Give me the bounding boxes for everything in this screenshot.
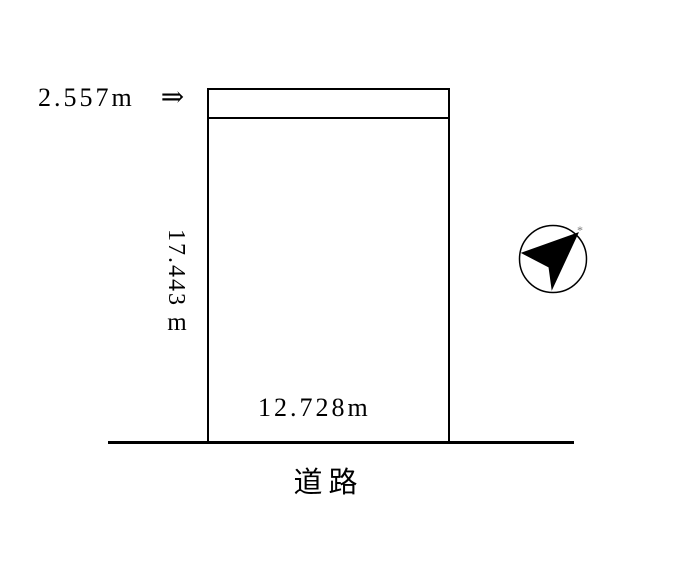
compass-needle-shape [522, 233, 578, 289]
setback-dimension: 2.557m ⇒ [38, 84, 184, 112]
right-double-arrow-icon: ⇒ [161, 84, 184, 112]
depth-dimension-unit: m [163, 310, 191, 336]
road-label: 道路 [207, 466, 450, 500]
north-arrow-icon: * [514, 219, 594, 299]
frontage-dimension-value: 12.728m [258, 394, 371, 422]
setback-dimension-value: 2.557m [38, 84, 135, 112]
setback-divider-line [207, 117, 450, 119]
land-plot-diagram: 2.557m ⇒ 17.443 m 12.728m 道路 * [0, 0, 694, 586]
road-line [108, 441, 574, 444]
plot-boundary [207, 88, 450, 443]
north-mark: * [577, 223, 583, 237]
depth-dimension-value: 17.443 [164, 223, 188, 313]
